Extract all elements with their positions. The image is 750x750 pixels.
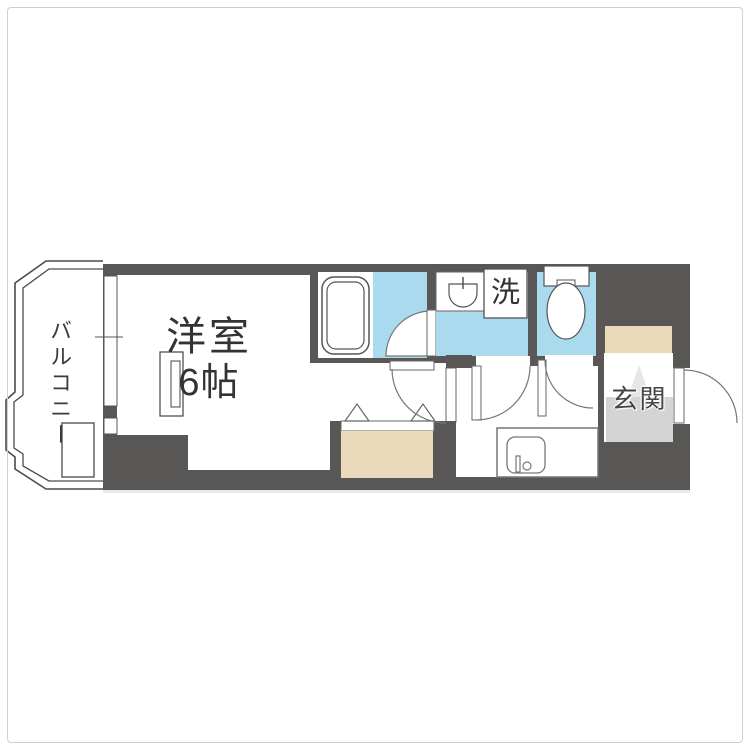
floor-plan-drawing — [0, 0, 750, 750]
washroom-doorway — [476, 356, 530, 367]
toilet-door-leaf — [538, 360, 546, 416]
bathtub-icon — [322, 277, 369, 354]
room-door-leaf — [390, 361, 434, 370]
entrance-label: 玄関 — [606, 386, 673, 413]
closet-wall-stub-right — [434, 421, 456, 478]
entrance-door-leaf — [674, 368, 684, 423]
room-size-label: 6帖 — [159, 364, 259, 404]
entrance-door-swing — [684, 370, 737, 423]
floor-plan: 洋室 6帖 バルコニー 洗 玄関 — [0, 0, 750, 750]
wall-block-bottom-left — [103, 435, 188, 482]
washroom-door-leaf — [472, 366, 481, 420]
room-doorway — [446, 368, 456, 422]
small-window — [104, 418, 117, 434]
toilet-doorway — [545, 355, 593, 367]
kitchen-faucet-icon — [516, 456, 520, 472]
closet-door-track — [341, 421, 434, 431]
wall-shadow — [103, 490, 690, 493]
genkan-passage — [604, 353, 673, 363]
balcony-label: バルコニー — [48, 294, 71, 474]
window — [104, 276, 117, 406]
main-room-label: 洋室 — [159, 316, 259, 358]
closet — [341, 431, 433, 478]
kitchen-drain-icon — [523, 462, 531, 470]
toilet-bowl-icon — [547, 283, 585, 339]
washing-machine-label: 洗 — [484, 278, 527, 308]
main-room-floor-ext — [310, 363, 330, 470]
closet-wall-stub-left — [330, 421, 341, 478]
wall-patch-door-head — [446, 355, 472, 368]
shoe-cabinet — [605, 326, 672, 353]
bath-door-leaf — [427, 310, 436, 356]
